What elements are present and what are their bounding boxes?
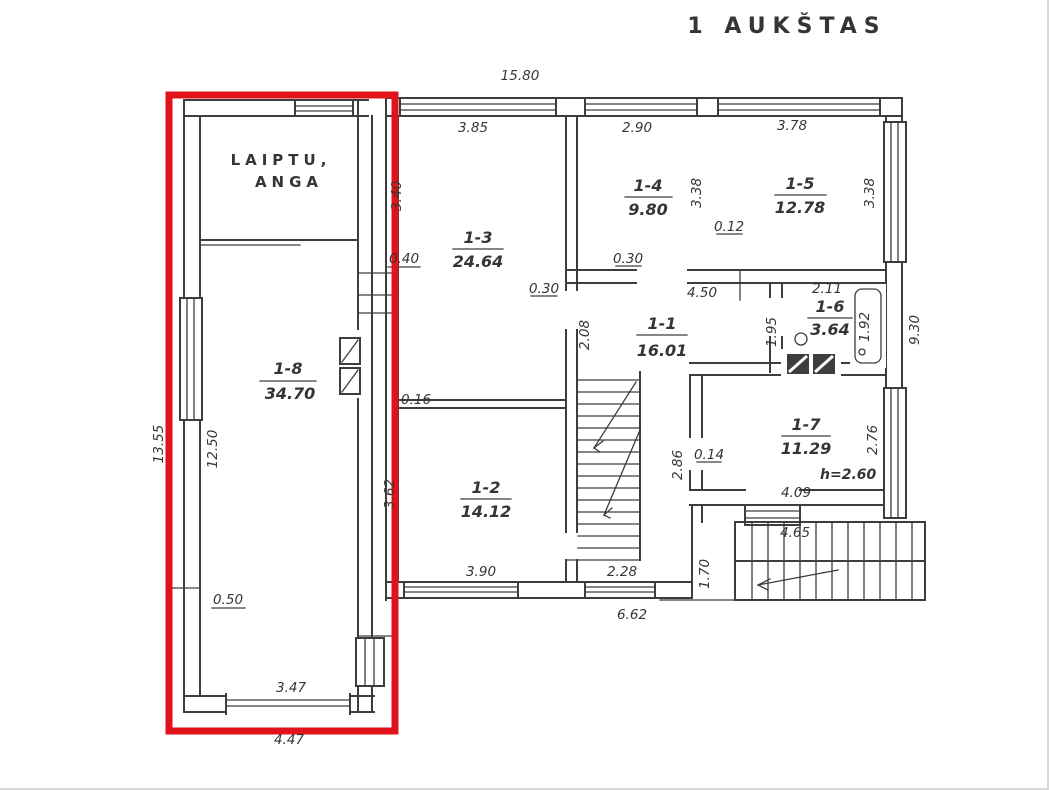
room-label-1-3: 1-3 24.64 [453,228,504,271]
ceiling-height-note: h=2.60 [820,467,876,483]
dim-wall-040: 0.40 [389,251,419,267]
dim-niche-050: 0.50 [213,592,243,608]
stove [781,349,841,379]
dim-room16-width: 2.11 [812,281,842,297]
room-area: 12.78 [775,198,826,217]
dim-room11-side: 2.08 [577,320,593,350]
dim-bath-length: 1.92 [857,312,873,342]
window-top-stair-opening [295,100,353,116]
dim-left-inner: 12.50 [205,430,221,469]
room-label-1-5: 1-5 12.78 [775,174,826,217]
stair-direction-arrows [594,382,640,518]
dim-room17-window: 2.76 [865,425,881,455]
room-label-1-4: 1-4 9.80 [625,176,672,219]
fixtures [332,284,886,398]
room-area: 3.64 [810,320,849,339]
dim-pier-030-left: 0.30 [529,281,559,297]
dim-garage-opening: 3.47 [276,680,306,696]
dim-room17-width: 4.09 [781,485,811,501]
dim-room12-side: 3.62 [382,479,398,509]
window-right-room15 [884,122,906,262]
dim-room15-width: 3.78 [777,118,807,134]
stair-opening-label-line1: LAIPTU, [231,151,332,169]
garage-door-opening [226,694,350,714]
dim-porch-228: 2.28 [607,564,637,580]
dim-pier-030-mid: 0.30 [613,251,643,267]
window-bottom-room12 [404,582,518,598]
interior-staircase [578,380,640,548]
room-id: 1-3 [464,228,493,247]
window-garage-left [180,298,202,420]
dim-room14-width: 2.90 [622,120,652,136]
dim-room15-depth: 3.38 [862,178,878,208]
window-top-room14 [585,98,697,116]
room-label-1-6: 1-6 3.64 [808,297,852,339]
room-label-1-2: 1-2 14.12 [461,478,512,521]
room-area: 14.12 [461,502,512,521]
room-area: 24.64 [453,252,504,271]
window-bottom-hall [585,582,655,598]
dim-room13-side: 3.40 [389,181,405,211]
dim-left-outer: 13.55 [151,425,167,464]
room-label-1-1: 1-1 16.01 [637,314,688,360]
external-stair-arrow [758,570,838,590]
room-id: 1-6 [816,297,845,316]
dim-top-width: 15.80 [501,68,540,84]
dim-wall-286: 2.86 [670,450,686,480]
room-id: 1-4 [634,176,663,195]
dim-room12-width: 3.90 [466,564,496,580]
floor-plan-page: 1 AUKŠTAS 1-3 24.64 1-4 9.80 1-5 12.78 1… [0,0,1049,790]
dim-gap-012: 0.12 [714,219,744,235]
floor-plan-drawing: 1 AUKŠTAS 1-3 24.64 1-4 9.80 1-5 12.78 1… [0,0,1049,790]
dim-right-depth: 9.30 [907,315,923,345]
dim-door-014: 0.14 [694,447,724,463]
room-area: 16.01 [637,341,688,360]
window-garage-right [356,638,384,686]
page-title: 1 AUKŠTAS [687,13,886,39]
dim-room11-width: 4.50 [687,285,717,301]
flue-stack [332,330,368,398]
dimension-underlines [212,234,742,608]
dim-bottom-outer: 4.47 [274,732,304,748]
room-id: 1-7 [792,415,822,434]
stair-opening-label-line2: ANGA [255,173,323,191]
dim-room16-depth: 1.95 [764,317,780,347]
room-id: 1-2 [472,478,501,497]
dim-room14-depth: 3.38 [689,178,705,208]
room-id: 1-1 [648,314,677,333]
room-label-1-7: 1-7 11.29 [781,415,832,458]
window-top-room13 [400,98,556,116]
room-area: 9.80 [628,200,667,219]
room-area: 34.70 [265,384,316,403]
room-area: 11.29 [781,439,832,458]
dim-wall-016: 0.16 [401,392,431,408]
window-top-room15 [718,98,880,116]
room-id: 1-8 [274,359,303,378]
window-right-room17 [884,388,906,518]
room-id: 1-5 [786,174,815,193]
dim-landing-170: 1.70 [697,559,713,589]
dim-room13-width: 3.85 [458,120,488,136]
room-label-1-8: 1-8 34.70 [260,359,316,403]
dim-ext-stairs-465: 4.65 [780,525,810,541]
dim-bottom-width: 6.62 [617,607,647,623]
